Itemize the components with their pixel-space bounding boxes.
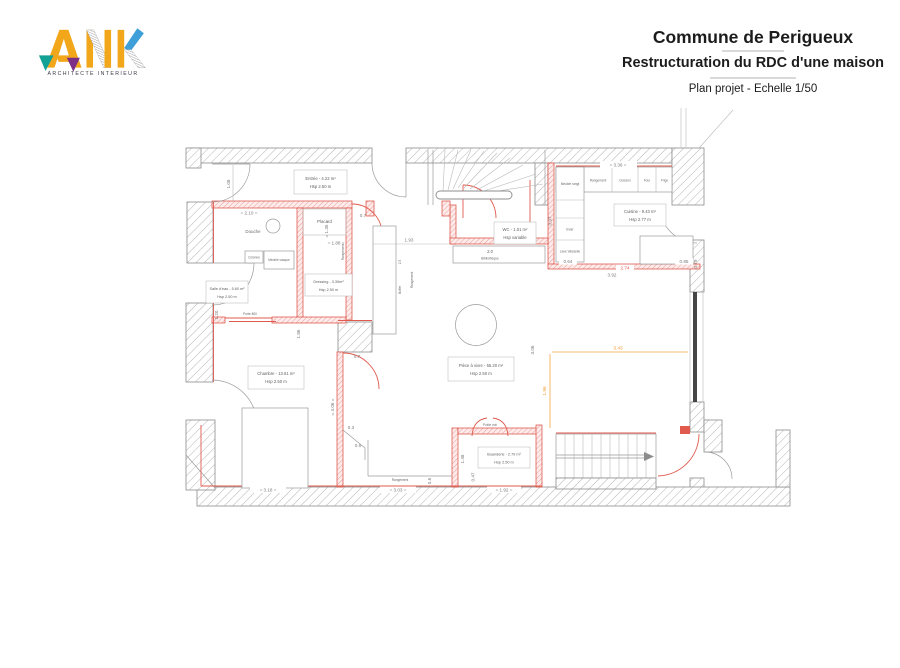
svg-text:Hsp 2.50 m: Hsp 2.50 m <box>310 184 332 189</box>
dim-kitchen-d2: 3.92 <box>608 273 617 278</box>
label-cabinet-rangement: Rangement <box>590 179 607 183</box>
label-bibliotheque: Bibliothèque <box>481 257 499 261</box>
room-label-buanderie: Buanderie - 2.79 m² Hsp 2.50 m <box>478 447 530 468</box>
room-label-entree: Entrée - 4.22 m² Hsp 2.50 m <box>294 170 347 194</box>
label-cabinet-four: Four <box>644 179 651 183</box>
dim-pier-bottom: 0.7 <box>354 354 361 359</box>
dim-kitchen-left: 0.97 <box>548 216 553 225</box>
svg-text:Hsp 2.50 m: Hsp 2.50 m <box>217 295 236 299</box>
label-porte-800: Porte 800 <box>243 312 257 316</box>
label-meuble-vasque: Meuble vasque <box>268 258 290 262</box>
dim-buanderie-height: 0.47 <box>471 472 476 481</box>
dim-notch-a: 0.3 <box>348 425 355 430</box>
dim-chambre-height: = 4.06 = <box>330 398 335 415</box>
label-douche: Douche <box>245 229 261 234</box>
label-rangement-hall: Rangement <box>410 272 414 289</box>
label-rangement-dressing: Rangement <box>341 244 345 261</box>
dim-kitchen-red: 2.74 <box>621 266 630 271</box>
room-label-wc: WC - 1.01 m² Hsp variable <box>494 222 536 244</box>
dim-rangement-height: 1.48 <box>460 454 465 463</box>
shower-drain-symbol <box>266 219 280 233</box>
pocket-door <box>225 318 276 322</box>
bed <box>242 408 308 488</box>
dim-buffet-gap: 0.7 <box>360 213 367 218</box>
svg-text:Pièce à vivre - 55.20 m²: Pièce à vivre - 55.20 m² <box>459 363 504 368</box>
dim-chambre-width: = 3.18 = <box>260 488 277 493</box>
bedroom-door-arc <box>343 353 379 389</box>
label-rangement-bottom: Rangement <box>392 478 409 482</box>
label-cabinet-frigo: Frigo <box>661 179 668 183</box>
dim-dressing-width: = 1.88 = <box>328 241 345 246</box>
dim-kitchen-width: = 3.36 = <box>610 163 627 168</box>
dim-rangement-depth: 0.6 <box>427 477 432 484</box>
dim-left-pier: 1.20 <box>214 310 219 319</box>
label-cabinet-cuisson: Cuisson <box>619 179 631 183</box>
svg-text:Cuisine - 9.43 m²: Cuisine - 9.43 m² <box>624 209 656 214</box>
dim-bath-inner: = 1.35 = <box>324 220 329 237</box>
dim-living-width-orange: 3.43 <box>613 346 623 352</box>
dim-rangement-width: = 3.03 = <box>390 488 407 493</box>
svg-text:Hsp 2.50 m: Hsp 2.50 m <box>265 379 287 384</box>
logo-ank: ARCHITECTE INTERIEUR <box>39 28 146 77</box>
wc-door-arc <box>463 185 496 218</box>
drawing-canvas: ARCHITECTE INTERIEUR Commune de Perigueu… <box>0 0 900 668</box>
svg-text:Hsp variable: Hsp variable <box>503 235 527 240</box>
room-label-cuisine: Cuisine - 9.43 m² Hsp 2.77 m <box>614 204 666 226</box>
door-arc <box>212 164 250 202</box>
dim-hall-width: 1.93 <box>405 238 414 243</box>
svg-text:Buanderie - 2.79 m²: Buanderie - 2.79 m² <box>487 453 521 457</box>
room-label-piece-a-vivre: Pièce à vivre - 55.20 m² Hsp 2.50 m <box>448 357 514 381</box>
dim-living-height: 3.06 <box>530 345 535 354</box>
svg-text:Chambre - 13.61 m²: Chambre - 13.61 m² <box>257 371 295 376</box>
svg-text:Entrée - 4.22 m²: Entrée - 4.22 m² <box>305 176 336 181</box>
svg-text:Salle d'eau - 5.60 m²: Salle d'eau - 5.60 m² <box>210 287 246 291</box>
dim-kitchen-d1: 0.64 <box>564 259 573 264</box>
bay-window <box>690 292 703 402</box>
svg-text:Hsp 2.50 m: Hsp 2.50 m <box>470 371 492 376</box>
bookshelf <box>453 246 545 263</box>
label-lave-vaisselle: Lave Vaisselle <box>560 250 581 254</box>
logo-letter-a <box>39 30 82 72</box>
svg-text:Hsp 2.50 m: Hsp 2.50 m <box>319 288 338 292</box>
svg-text:Hsp 2.77 m: Hsp 2.77 m <box>629 217 651 222</box>
svg-text:Dressing - 3.39m²: Dressing - 3.39m² <box>313 280 344 284</box>
label-buffet: Buffet <box>398 286 402 294</box>
stair-handrail <box>436 191 512 199</box>
room-label-dressing: Dressing - 3.39m² Hsp 2.50 m <box>305 274 352 296</box>
dim-biblio-width: 2.0 <box>487 249 493 254</box>
round-table <box>456 305 497 346</box>
label-colonne: Colonne <box>248 256 260 260</box>
logo-letter-k <box>118 28 146 67</box>
dim-notch-b: 0.6 <box>355 443 362 448</box>
sheet-caption: Plan projet - Echelle 1/50 <box>689 83 818 95</box>
annex-door-arc <box>705 452 732 479</box>
dim-buffet-depth: 2.5 <box>398 260 402 265</box>
room-label-salle-eau: Salle d'eau - 5.60 m² Hsp 2.50 m <box>206 281 248 303</box>
dim-kitchen-d3: 0.85 <box>680 259 689 264</box>
sheet-subtitle: Restructuration du RDC d'une maison <box>622 55 884 71</box>
door-jamb-marker <box>680 426 690 434</box>
dim-living-height-orange: 1.96 <box>542 386 548 396</box>
dim-pier-right: 0.79 <box>693 259 698 268</box>
logo-letter-n <box>86 30 111 68</box>
logo-tagline: ARCHITECTE INTERIEUR <box>48 71 139 77</box>
title-block: Commune de Perigueux Restructuration du … <box>622 27 884 95</box>
svg-text:Hsp 2.50 m: Hsp 2.50 m <box>494 461 513 465</box>
dim-douche-width: = 2.10 = <box>241 211 258 216</box>
straight-staircase <box>556 434 656 489</box>
sheet-title: Commune de Perigueux <box>653 27 854 47</box>
svg-text:WC - 1.01 m²: WC - 1.01 m² <box>503 227 528 232</box>
buffet-cabinet <box>373 226 396 334</box>
room-label-chambre: Chambre - 13.61 m² Hsp 2.50 m <box>248 366 304 389</box>
entrance-door-arc <box>372 163 406 197</box>
stair-door-arc <box>658 434 699 476</box>
plan-sheet: ARCHITECTE INTERIEUR Commune de Perigueu… <box>0 0 900 668</box>
window-glazing-bar <box>693 292 697 402</box>
dim-buanderie-width: = 1.92 = <box>496 488 513 493</box>
dim-dressing-height: 1.86 <box>296 329 301 338</box>
dim-entree-left: 1.08 <box>226 179 231 188</box>
label-evier: Evier <box>566 228 574 232</box>
label-meuble-rangt: Meuble rangt <box>561 182 580 186</box>
label-poele: Poêle mix <box>483 423 497 427</box>
